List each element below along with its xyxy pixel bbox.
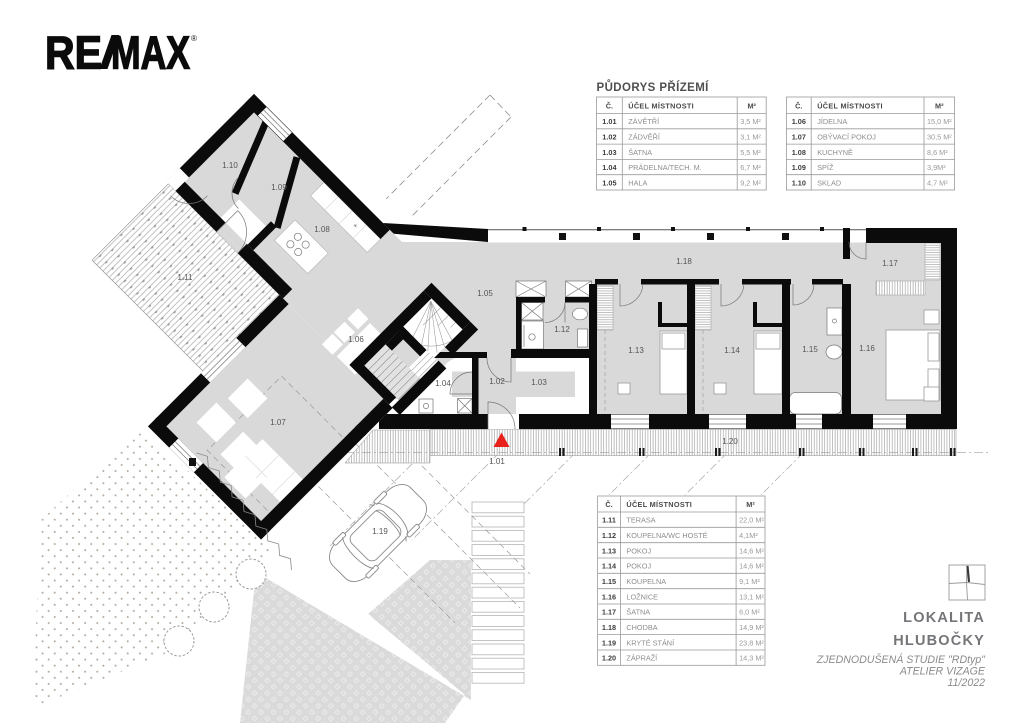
svg-text:30,5 M²: 30,5 M² — [927, 133, 952, 142]
svg-text:1.15: 1.15 — [802, 345, 818, 354]
svg-text:22,0 M²: 22,0 M² — [739, 516, 764, 525]
svg-text:1.10: 1.10 — [792, 178, 806, 187]
svg-text:1.11: 1.11 — [178, 273, 194, 282]
svg-text:1.11: 1.11 — [602, 516, 616, 525]
svg-text:1.16: 1.16 — [859, 344, 875, 353]
svg-text:6,0 M²: 6,0 M² — [739, 608, 760, 617]
svg-text:ÚČEL MÍSTNOSTI: ÚČEL MÍSTNOSTI — [626, 500, 692, 509]
svg-text:1.18: 1.18 — [602, 623, 616, 632]
svg-text:1.15: 1.15 — [602, 577, 616, 586]
svg-text:POKOJ: POKOJ — [626, 546, 651, 555]
svg-text:1.14: 1.14 — [724, 346, 740, 355]
svg-text:PRÁDELNA/TECH. M.: PRÁDELNA/TECH. M. — [628, 163, 701, 172]
svg-text:KRYTÉ STÁNÍ: KRYTÉ STÁNÍ — [626, 638, 675, 647]
svg-text:13,1 M²: 13,1 M² — [739, 592, 764, 601]
svg-text:ŠATNA: ŠATNA — [626, 608, 650, 617]
svg-text:M²: M² — [747, 101, 756, 110]
svg-text:14,6 M²: 14,6 M² — [739, 546, 764, 555]
svg-text:9,2 M²: 9,2 M² — [740, 178, 761, 187]
svg-text:1.12: 1.12 — [602, 531, 616, 540]
svg-text:1.03: 1.03 — [602, 148, 616, 157]
svg-text:1.02: 1.02 — [602, 133, 616, 142]
svg-text:SKLAD: SKLAD — [817, 178, 841, 187]
svg-text:1.03: 1.03 — [531, 378, 547, 387]
svg-text:1.13: 1.13 — [602, 546, 616, 555]
svg-text:ÚČEL MÍSTNOSTI: ÚČEL MÍSTNOSTI — [817, 101, 883, 110]
svg-text:Č.: Č. — [795, 101, 802, 110]
svg-text:3,5 M²: 3,5 M² — [740, 117, 761, 126]
svg-text:1.09: 1.09 — [792, 163, 806, 172]
svg-text:4,1M²: 4,1M² — [739, 531, 758, 540]
svg-text:1.19: 1.19 — [372, 527, 388, 536]
svg-text:ZÁVĚTŘÍ: ZÁVĚTŘÍ — [628, 117, 660, 126]
svg-text:TERASA: TERASA — [626, 516, 655, 525]
svg-text:23,8 M²: 23,8 M² — [739, 638, 764, 647]
svg-text:KOUPELNA/WC HOSTÉ: KOUPELNA/WC HOSTÉ — [626, 531, 707, 540]
svg-text:1.06: 1.06 — [792, 117, 806, 126]
svg-text:1.19: 1.19 — [602, 638, 616, 647]
svg-text:6,7 M²: 6,7 M² — [740, 163, 761, 172]
svg-text:14,9 M²: 14,9 M² — [739, 623, 764, 632]
svg-text:8,6 M²: 8,6 M² — [927, 148, 948, 157]
svg-text:1.05: 1.05 — [477, 289, 493, 298]
svg-text:1.20: 1.20 — [602, 654, 616, 663]
svg-text:ZÁDVĚŘÍ: ZÁDVĚŘÍ — [628, 133, 661, 142]
svg-text:1.02: 1.02 — [489, 377, 505, 386]
svg-text:14,6 M²: 14,6 M² — [739, 562, 764, 571]
svg-text:MAX: MAX — [111, 27, 190, 79]
svg-text:1.06: 1.06 — [348, 335, 364, 344]
svg-text:1.16: 1.16 — [602, 592, 616, 601]
svg-text:KUCHYNĚ: KUCHYNĚ — [817, 148, 853, 157]
svg-text:9,1 M²: 9,1 M² — [739, 577, 760, 586]
svg-text:ÚČEL MÍSTNOSTI: ÚČEL MÍSTNOSTI — [628, 101, 694, 110]
svg-text:1.17: 1.17 — [602, 608, 616, 617]
svg-text:Č.: Č. — [606, 101, 613, 110]
svg-text:11/2022: 11/2022 — [947, 677, 985, 689]
svg-text:1.10: 1.10 — [222, 161, 238, 170]
svg-text:M²: M² — [935, 101, 944, 110]
svg-text:5,5 M²: 5,5 M² — [740, 148, 761, 157]
svg-text:14,3 M²: 14,3 M² — [739, 654, 764, 663]
svg-text:1.01: 1.01 — [602, 117, 616, 126]
svg-text:1.14: 1.14 — [602, 562, 617, 571]
svg-text:1.18: 1.18 — [676, 257, 692, 266]
svg-text:1.01: 1.01 — [489, 457, 505, 466]
svg-text:1.17: 1.17 — [882, 259, 898, 268]
svg-text:1.12: 1.12 — [554, 325, 570, 334]
svg-text:CHODBA: CHODBA — [626, 623, 657, 632]
svg-text:3,1 M²: 3,1 M² — [740, 133, 761, 142]
svg-text:POKOJ: POKOJ — [626, 562, 651, 571]
svg-text:1.20: 1.20 — [722, 437, 738, 446]
svg-text:1.04: 1.04 — [435, 379, 451, 388]
svg-text:Č.: Č. — [605, 500, 612, 509]
svg-text:15,0 M²: 15,0 M² — [927, 117, 952, 126]
svg-text:ŠATNA: ŠATNA — [628, 148, 652, 157]
svg-text:PŮDORYS PŘÍZEMÍ: PŮDORYS PŘÍZEMÍ — [597, 80, 710, 94]
svg-text:RE: RE — [45, 27, 102, 79]
svg-text:SPÍŽ: SPÍŽ — [817, 163, 834, 172]
svg-text:HLUBOČKY: HLUBOČKY — [893, 631, 985, 649]
svg-text:1.09: 1.09 — [271, 183, 287, 192]
svg-text:1.07: 1.07 — [270, 418, 286, 427]
svg-text:M²: M² — [746, 500, 755, 509]
svg-text:ZJEDNODUŠENÁ STUDIE "RDtyp": ZJEDNODUŠENÁ STUDIE "RDtyp" — [816, 653, 986, 666]
svg-text:1.08: 1.08 — [792, 148, 806, 157]
svg-text:1.07: 1.07 — [792, 133, 806, 142]
svg-text:LOŽNICE: LOŽNICE — [626, 592, 658, 601]
svg-text:®: ® — [191, 34, 197, 43]
svg-text:JÍDELNA: JÍDELNA — [817, 117, 847, 126]
svg-text:3,9M²: 3,9M² — [927, 163, 946, 172]
svg-text:OBÝVACÍ POKOJ: OBÝVACÍ POKOJ — [817, 133, 876, 142]
svg-text:LOKALITA: LOKALITA — [903, 610, 985, 626]
svg-text:ATELIER VIZAGE: ATELIER VIZAGE — [899, 666, 986, 678]
svg-text:HALA: HALA — [628, 178, 647, 187]
svg-text:1.08: 1.08 — [314, 225, 330, 234]
svg-text:KOUPELNA: KOUPELNA — [626, 577, 666, 586]
svg-text:1.13: 1.13 — [628, 346, 644, 355]
svg-text:4,7 M²: 4,7 M² — [927, 178, 948, 187]
svg-text:1.04: 1.04 — [602, 163, 617, 172]
svg-text:1.05: 1.05 — [602, 178, 616, 187]
svg-text:ZÁPRAŽÍ: ZÁPRAŽÍ — [626, 654, 658, 663]
